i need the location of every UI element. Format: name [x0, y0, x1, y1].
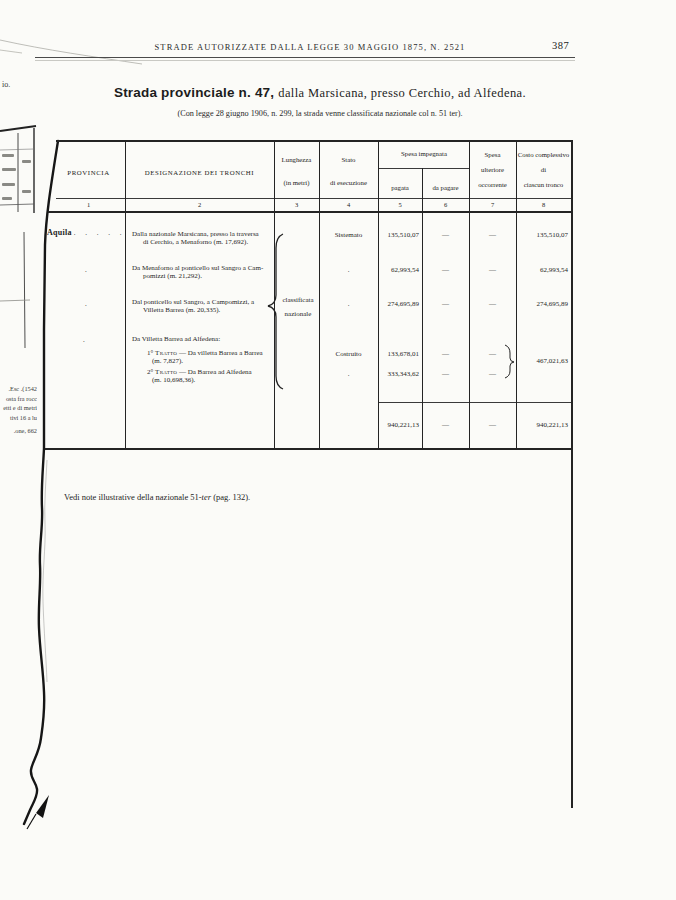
- tronco-desc: 2° Tratto — Da Barrea ad Alfedena: [147, 368, 252, 376]
- pagata-cell: 274,695,89: [378, 300, 419, 308]
- crease-line: [0, 50, 22, 53]
- header-stato-sub: di esecuzione: [319, 179, 378, 187]
- costo-cell: 274,695,89: [517, 300, 568, 308]
- illegible-text-fragment: [2, 154, 14, 157]
- tronco-desc: Dalla nazionale Marsicana, presso la tra…: [132, 230, 259, 238]
- footnote-text: (pag. 132).: [211, 492, 250, 502]
- margin-text-fragment: one, 662.: [0, 427, 37, 434]
- tratto-number: 2°: [147, 368, 153, 376]
- total-ulteriore: —: [469, 421, 516, 429]
- spesa-group-rule: [378, 168, 470, 169]
- illegible-text-fragment: [22, 160, 31, 163]
- da-pagare-cell: —: [422, 231, 469, 239]
- fragment-rule: [0, 300, 30, 301]
- document-title: Strada provinciale n. 47, dalla Marsican…: [40, 83, 600, 101]
- fragment-table-line: [0, 204, 34, 205]
- pagata-cell: 135,510,07: [378, 231, 419, 239]
- tronco-desc: Villetta Barrea (m. 20,335).: [143, 306, 220, 314]
- header-costo-2: di: [516, 166, 571, 174]
- header-costo-1: Costo complessivo: [516, 151, 571, 159]
- tratto-label: Tratto: [155, 368, 177, 376]
- tronco-desc: (m. 7,827).: [152, 357, 183, 365]
- illegible-text-fragment: [2, 168, 16, 171]
- fragment-table-edge: [0, 126, 36, 131]
- header-stato: Stato: [319, 156, 378, 164]
- footnote-text: Vedi note illustrative della nazionale 5…: [64, 492, 202, 502]
- ulteriore-cell: —: [469, 350, 516, 358]
- header-pagata: pagata: [378, 184, 422, 192]
- document-subtitle: (Con legge 28 giugno 1906, n. 299, la st…: [40, 109, 600, 118]
- stato-cell: .: [319, 370, 378, 378]
- da-pagare-cell: —: [422, 350, 469, 358]
- pagata-cell: 333,343,62: [378, 370, 419, 378]
- pagata-cell: 133,678,01: [378, 350, 419, 358]
- tratto-desc: — Da villetta Barrea a Barrea: [179, 349, 263, 357]
- header-spesa-impegnata: Spesa impegnata: [378, 150, 470, 158]
- margin-text-fragment: osta fra rocc: [0, 395, 37, 402]
- illegible-text-fragment: [2, 183, 15, 186]
- ulteriore-cell: —: [469, 266, 516, 274]
- column-number-2: 2: [125, 201, 274, 208]
- stato-cell: Costruito: [319, 350, 378, 358]
- margin-text-fragment: etti e di metri: [0, 404, 37, 411]
- tronco-desc: (m. 10,698,36).: [152, 376, 195, 384]
- header-lunghezza-unit: (in metri): [274, 179, 319, 187]
- ulteriore-cell: —: [469, 231, 516, 239]
- header-rule: [35, 57, 575, 58]
- header-bottom-rule: [48, 211, 571, 213]
- margin-text-fragment: io.: [2, 80, 10, 89]
- header-provincia: PROVINCIA: [52, 169, 125, 177]
- table-border-bottom: [45, 448, 573, 450]
- tratto-number: 1°: [147, 349, 153, 357]
- page-number: 387: [552, 40, 569, 51]
- leader-dots: . . . . .: [74, 229, 126, 237]
- column-number-6: 6: [422, 201, 469, 208]
- total-costo: 940,221,13: [517, 421, 568, 429]
- tronco-desc: pomizzi (m. 21,292).: [143, 272, 202, 280]
- illegible-text-fragment: [2, 197, 12, 200]
- column-number-5: 5: [378, 201, 422, 208]
- tratto-desc: — Da Barrea ad Alfedena: [179, 368, 252, 376]
- costo-cell: 62,993,54: [517, 266, 568, 274]
- column-number-1: 1: [52, 201, 125, 208]
- tratto-label: Tratto: [155, 349, 177, 357]
- curl-arrow: [36, 795, 49, 818]
- combined-costo-cell: 467,021,63: [521, 357, 568, 365]
- margin-text-fragment: tivi 16 a lu: [0, 414, 37, 421]
- fragment-rule: [24, 232, 25, 348]
- tronco-desc: 1° Tratto — Da villetta Barrea a Barrea: [147, 349, 263, 357]
- footnote: Vedi note illustrative della nazionale 5…: [64, 492, 250, 502]
- page-curl-line: [24, 141, 58, 824]
- tronco-group-heading: Da Villetta Barrea ad Alfedena:: [132, 335, 220, 343]
- column-divider: [125, 140, 126, 448]
- margin-text-fragment: 1542). Esc.: [0, 385, 37, 392]
- column-number-7: 7: [469, 201, 516, 208]
- title-rest: dalla Marsicana, presso Cerchio, ad Alfe…: [278, 86, 526, 100]
- header-spesa-ulteriore-2: ulteriore: [469, 166, 516, 174]
- table-border-top: [56, 140, 573, 142]
- header-rule-echo: [35, 60, 575, 61]
- fragment-table-line: [0, 149, 34, 150]
- tronco-desc: Da Menaforno al ponticello sul Sangro a …: [132, 264, 263, 272]
- province-cell: Aquila . . . . .: [47, 229, 125, 237]
- da-pagare-cell: —: [422, 266, 469, 274]
- province-name: Aquila: [47, 228, 72, 237]
- tronco-desc: di Cerchio, a Menaforno (m. 17,692).: [143, 238, 248, 246]
- page-curl-echo: [43, 460, 47, 682]
- total-da-pagare: —: [422, 421, 469, 429]
- costo-cell: 135,510,07: [517, 231, 568, 239]
- column-number-3: 3: [274, 201, 319, 208]
- ulteriore-cell: —: [469, 370, 516, 378]
- ulteriore-cell: —: [469, 300, 516, 308]
- illegible-text-fragment: [22, 190, 31, 193]
- classification-note-line1: classificata: [278, 296, 318, 304]
- province-ditto: .: [85, 266, 87, 274]
- total-pagata: 940,221,13: [378, 421, 419, 429]
- pagata-cell: 62,993,54: [378, 266, 419, 274]
- stato-cell: .: [319, 266, 378, 274]
- column-divider: [422, 168, 423, 448]
- header-lunghezza: Lunghezza: [274, 156, 319, 164]
- header-costo-3: ciascun tronco: [516, 181, 571, 189]
- totals-rule: [378, 402, 571, 403]
- running-header: STRADE AUTORIZZATE DALLA LEGGE 30 MAGGIO…: [60, 42, 560, 52]
- column-number-8: 8: [516, 201, 571, 208]
- scan-artifacts: [0, 0, 676, 900]
- da-pagare-cell: —: [422, 370, 469, 378]
- header-designazione: DESIGNAZIONE DEI TRONCHI: [125, 169, 274, 177]
- header-da-pagare: da pagare: [422, 184, 469, 192]
- footnote-italic: ter: [202, 492, 211, 502]
- column-number-4: 4: [319, 201, 378, 208]
- header-spesa-ulteriore-1: Spesa: [469, 151, 516, 159]
- header-spesa-ulteriore-3: occorrente: [469, 181, 516, 189]
- title-bold: Strada provinciale n. 47,: [114, 85, 274, 100]
- stato-cell: .: [319, 300, 378, 308]
- classification-note-line2: nazionale: [278, 310, 318, 318]
- table-border-right: [571, 140, 573, 808]
- province-ditto: .: [83, 336, 85, 344]
- province-ditto: .: [85, 300, 87, 308]
- header-number-rule: [56, 198, 571, 199]
- scanned-document-page: STRADE AUTORIZZATE DALLA LEGGE 30 MAGGIO…: [0, 0, 676, 900]
- curl-arrow-tail: [27, 814, 36, 829]
- da-pagare-cell: —: [422, 300, 469, 308]
- stato-cell: Sistemato: [319, 231, 378, 239]
- tronco-desc: Dal ponticello sul Sangro, a Campomizzi,…: [132, 298, 254, 306]
